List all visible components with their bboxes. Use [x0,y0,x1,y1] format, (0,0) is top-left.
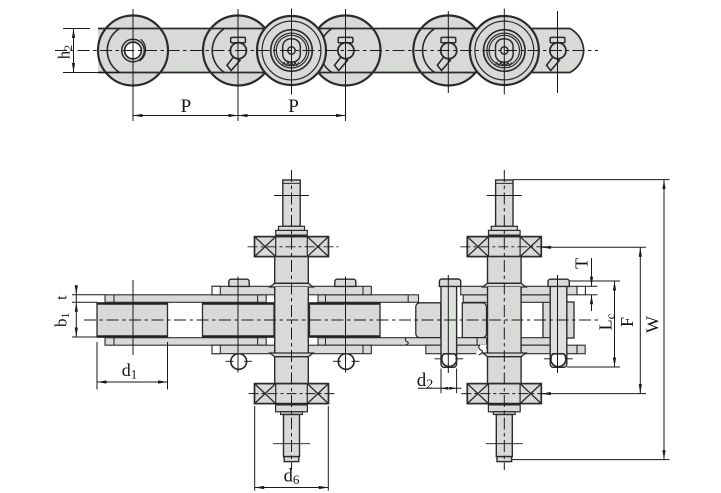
svg-text:F: F [617,317,637,327]
svg-text:W: W [643,316,663,333]
svg-text:P: P [288,96,299,117]
svg-text:T: T [572,258,592,269]
svg-text:P: P [181,96,192,117]
svg-text:t: t [54,295,71,300]
